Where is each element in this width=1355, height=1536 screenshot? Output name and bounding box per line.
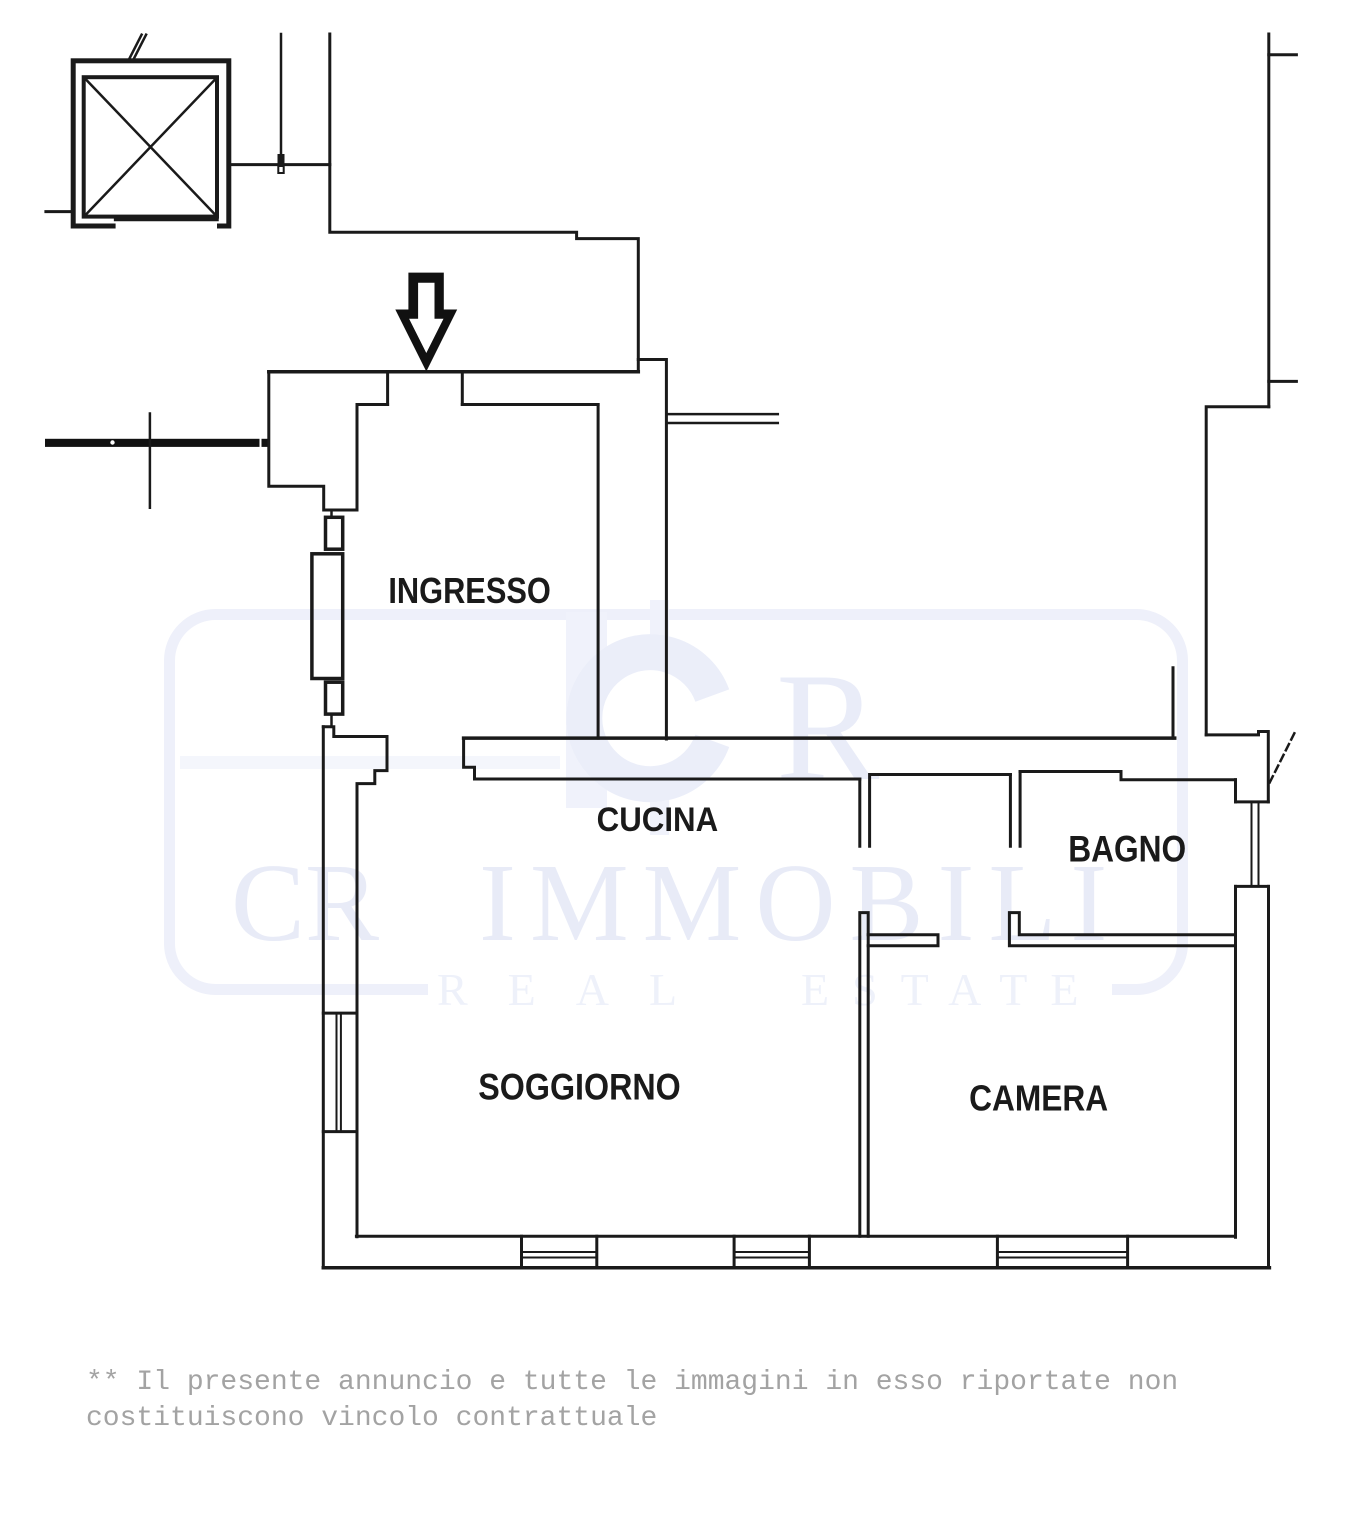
svg-text:INGRESSO: INGRESSO bbox=[388, 570, 551, 611]
svg-text:REAL: REAL bbox=[437, 964, 717, 1015]
svg-text:ESTATE: ESTATE bbox=[801, 964, 1101, 1015]
svg-text:SOGGIORNO: SOGGIORNO bbox=[478, 1066, 681, 1108]
svg-text:costituiscono vincolo contratt: costituiscono vincolo contrattuale bbox=[86, 1403, 657, 1434]
svg-text:** Il presente annuncio e tutt: ** Il presente annuncio e tutte le immag… bbox=[86, 1367, 1178, 1398]
svg-text:CUCINA: CUCINA bbox=[597, 801, 719, 839]
svg-text:R: R bbox=[776, 641, 880, 813]
svg-text:BAGNO: BAGNO bbox=[1068, 829, 1186, 870]
svg-text:CAMERA: CAMERA bbox=[969, 1078, 1108, 1119]
